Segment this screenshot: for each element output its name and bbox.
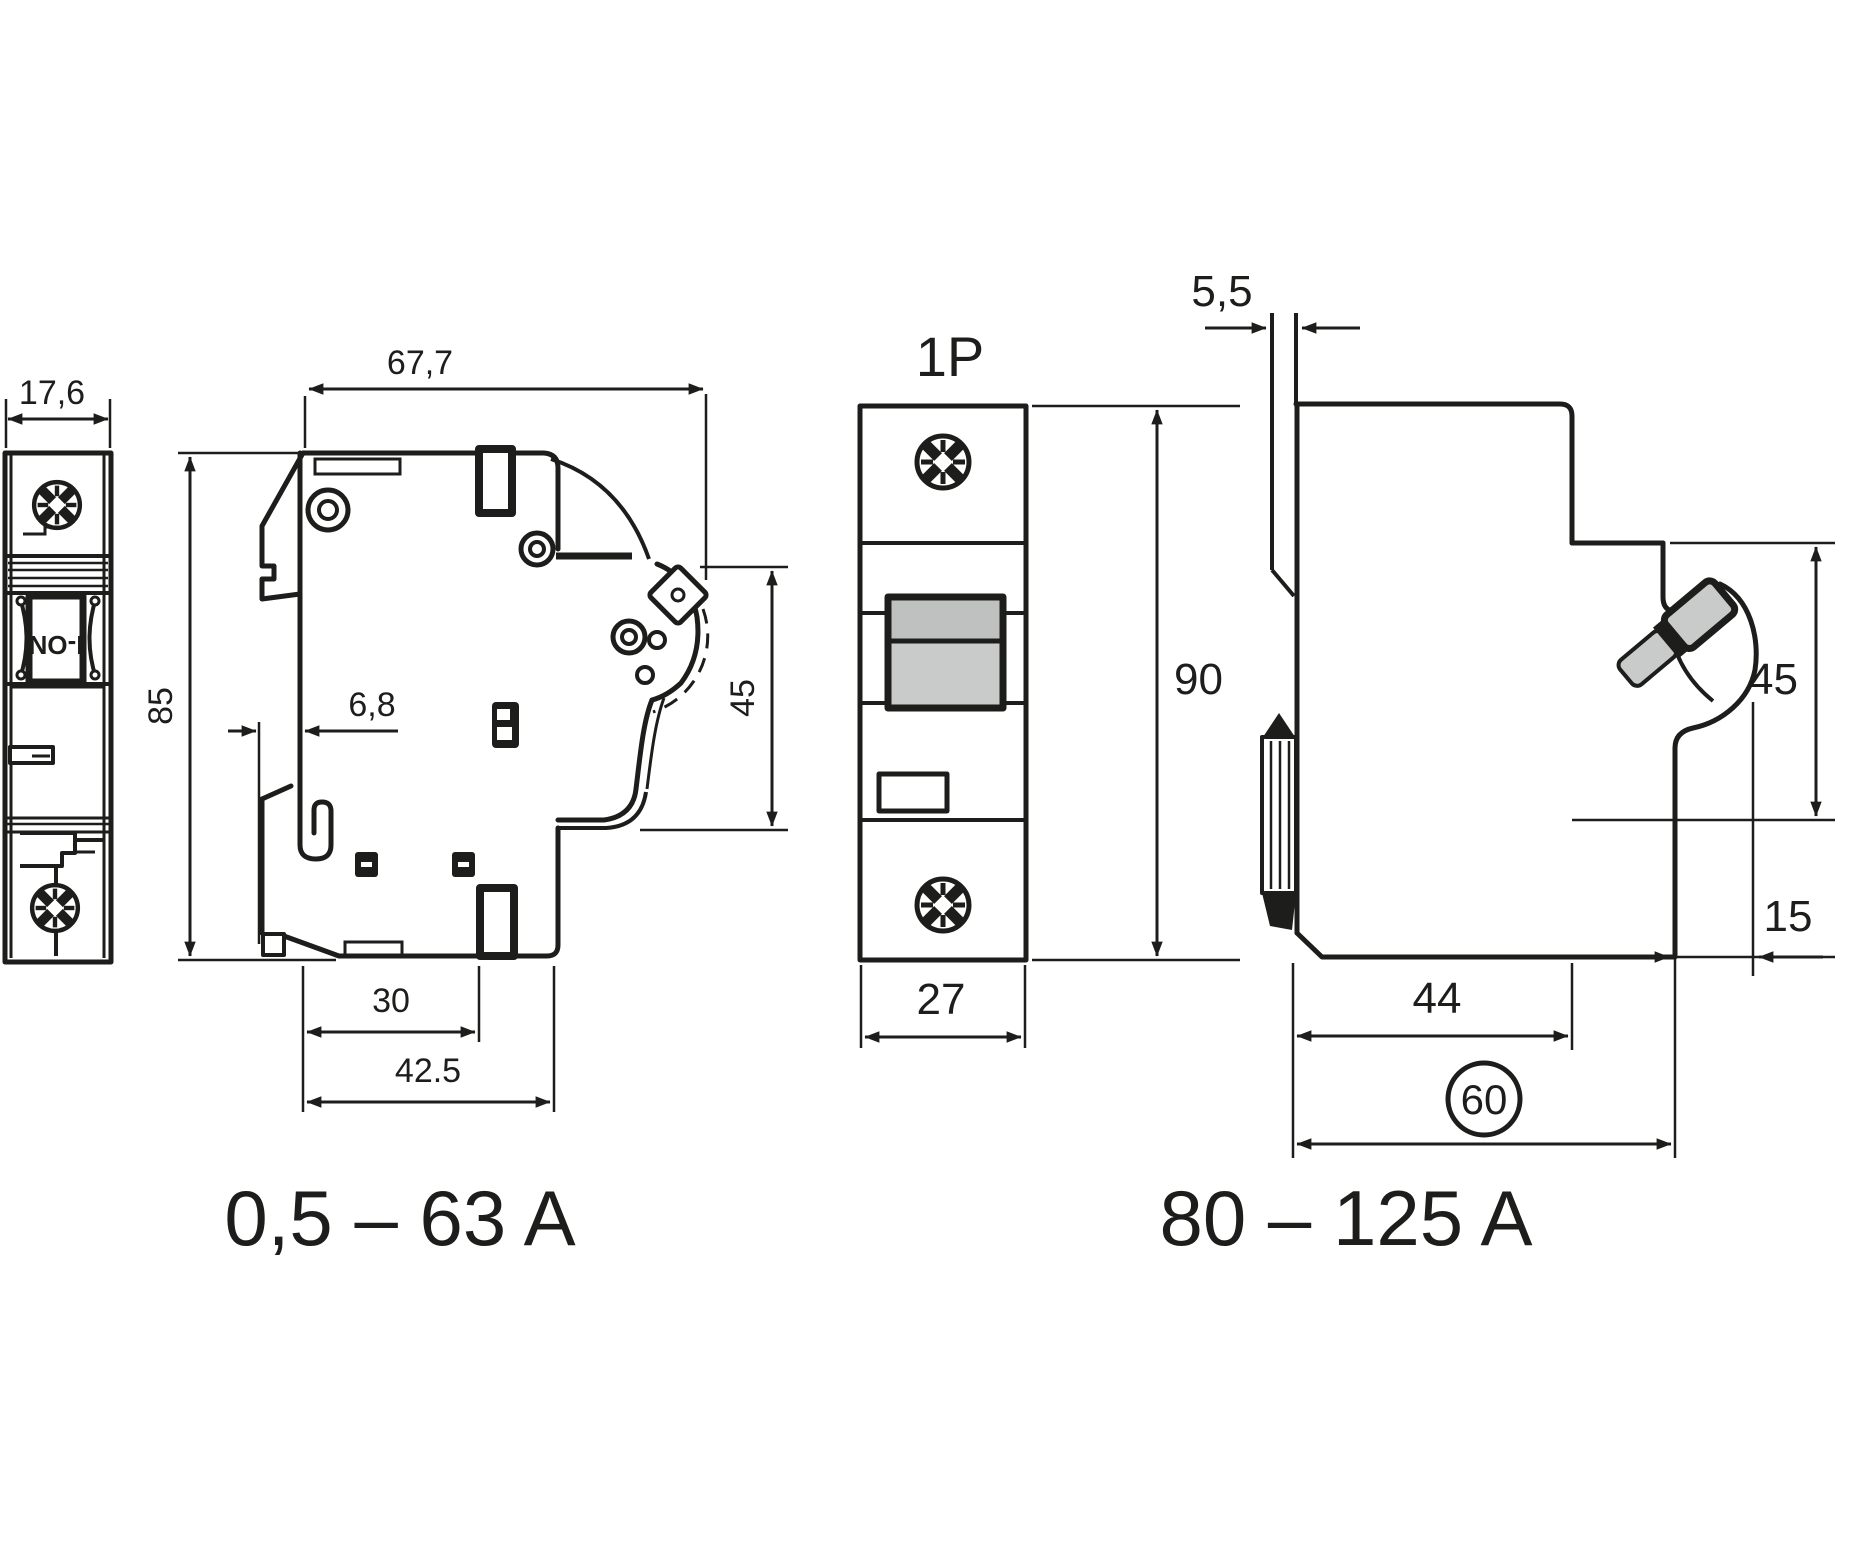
screw-pozidriv-icon: [34, 482, 80, 528]
dim-plate-5-5: 5,5: [1191, 267, 1360, 328]
dim-text: 60: [1461, 1076, 1508, 1123]
terminal-slot-bottom: [480, 888, 514, 956]
dim-text: 17,6: [19, 374, 85, 412]
dim-front-15: 15: [1615, 892, 1835, 957]
toggle-lever: [1612, 578, 1737, 692]
screw-pozidriv-icon: [32, 885, 78, 931]
dim-width-17-6: 17,6: [6, 374, 110, 448]
top-recess: [315, 459, 400, 474]
dim-text: 5,5: [1191, 267, 1252, 316]
dim-text: 85: [142, 687, 180, 725]
dim-text: 67,7: [387, 344, 453, 382]
housing-dome-arc: [551, 459, 649, 559]
toggle-pin-icon: [17, 597, 25, 605]
mount-squares: [355, 852, 475, 877]
toggle-pin-icon: [17, 671, 25, 679]
dim-depth-44: 44: [1293, 963, 1572, 1158]
dim-text: 30: [372, 982, 410, 1020]
label-range-large: 80 – 125 A: [1159, 1174, 1532, 1262]
dim-text: 15: [1764, 892, 1813, 941]
dim-text: 42.5: [395, 1052, 461, 1090]
screw-pozidriv-icon: [917, 436, 969, 488]
pivot-pin: [637, 667, 653, 683]
screw-pozidriv-icon: [917, 879, 969, 931]
side-view-large: 5,5 45 15 44 60 80 – 125 A: [1159, 267, 1835, 1262]
din-rail-clip: [1262, 713, 1296, 930]
dim-text: 45: [1749, 655, 1798, 704]
mcb-dimension-drawing: I-ON 17,6: [0, 0, 1856, 1562]
label-range-small: 0,5 – 63 A: [224, 1174, 575, 1262]
dim-text: 44: [1413, 974, 1462, 1023]
toggle-label: I-ON: [29, 630, 84, 660]
front-toggle-handle: [888, 597, 1003, 708]
toggle-pin-icon: [91, 597, 99, 605]
din-hook-upper: [262, 453, 303, 599]
latch-detail: [492, 702, 519, 748]
side-view-small: 67,7 85 6,8 45 30: [142, 344, 788, 1262]
din-clip-lower-top: [262, 786, 291, 799]
dim-slot-30: 30: [303, 966, 479, 1042]
screw-ring-icon: [521, 533, 553, 565]
toggle-pin-icon: [91, 671, 99, 679]
dim-module-60: 60: [1297, 957, 1675, 1158]
screw-ring-icon: [308, 490, 348, 530]
mounting-plate: [1272, 313, 1296, 596]
dim-text: 27: [917, 975, 966, 1024]
dim-height-85: 85: [142, 453, 336, 960]
dim-text: 90: [1174, 655, 1223, 704]
pivot-circle-inner: [622, 630, 636, 644]
dim-text: 6,8: [348, 686, 395, 724]
front-view-1p: 1P 27 90: [860, 325, 1240, 1048]
bottom-recess: [345, 942, 402, 955]
dim-depth-42-5: 42.5: [303, 966, 554, 1112]
front-title-1p: 1P: [916, 325, 985, 388]
dim-width-27: 27: [861, 965, 1025, 1048]
rating-window: [879, 774, 947, 811]
mcb-dimension-drawing-page: I-ON 17,6: [0, 0, 1856, 1562]
clip-foot: [263, 934, 284, 955]
dim-text: 45: [724, 679, 762, 717]
narrow-front-view: I-ON 17,6: [5, 374, 111, 962]
terminal-slot-top: [479, 449, 512, 513]
pivot-pin: [649, 632, 665, 648]
dim-height-90: 90: [1032, 406, 1240, 960]
